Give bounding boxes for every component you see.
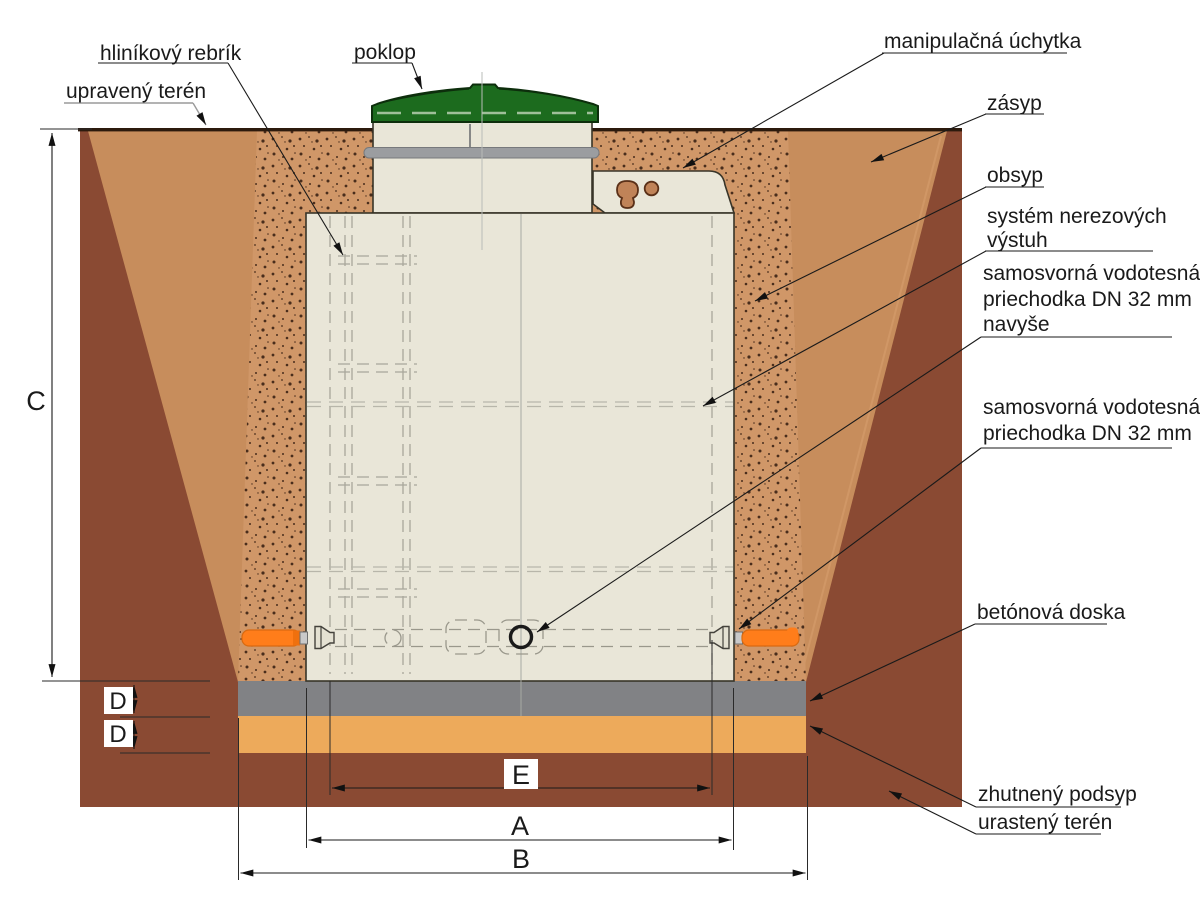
label-priechodka-2: priechodka DN 32 mm (983, 422, 1192, 445)
label-obsyp: obsyp (987, 164, 1043, 187)
handle-cutout-circle (645, 182, 659, 196)
label-priechodka-navyse-2: priechodka DN 32 mm (983, 288, 1192, 311)
label-betonova-doska: betónová doska (977, 601, 1126, 624)
right-pipe-bump (787, 628, 798, 637)
dim-label-D2: D (109, 721, 126, 748)
dimension-A: A (309, 811, 732, 841)
compacted-bedding-sand (238, 716, 806, 753)
left-wall-connector (300, 632, 308, 644)
concrete-slab (238, 681, 806, 716)
dimension-C: C (26, 133, 52, 677)
label-hlinikovy-rebrik: hliníkový rebrík (100, 42, 242, 65)
diagram-canvas: C D D E A B (0, 0, 1200, 899)
label-manipulacna-uchytka: manipulačná úchytka (884, 30, 1082, 53)
tank-shoulder-plate (593, 171, 734, 213)
label-poklop: poklop (354, 41, 416, 64)
right-wall-connector (735, 632, 743, 644)
dim-label-D1: D (109, 688, 126, 715)
tank-body (306, 213, 734, 681)
dimension-D2: D (104, 720, 134, 749)
label-system-nerez-1: systém nerezových (987, 205, 1167, 228)
installation-diagram: C D D E A B (0, 0, 1200, 899)
left-pipe-assembly (242, 627, 334, 649)
dim-label-A: A (511, 811, 529, 841)
label-system-nerez-2: výstuh (987, 229, 1048, 252)
left-orange-pipe (242, 630, 300, 646)
label-priechodka-navyse-1: samosvorná vodotesná (983, 262, 1200, 285)
label-upraveny-teren: upravený terén (66, 80, 206, 103)
label-priechodka-navyse-3: navyše (983, 313, 1050, 336)
dimension-D1: D (104, 685, 134, 715)
label-zhutneny-podsyp: zhutnený podsyp (978, 783, 1137, 806)
dim-label-E: E (512, 760, 530, 790)
left-pipe-cap (293, 631, 300, 646)
right-pipe-assembly (710, 627, 799, 649)
dim-label-C: C (26, 386, 46, 416)
dim-label-B: B (512, 844, 530, 874)
dimension-B: B (241, 844, 806, 874)
label-zasyp: zásyp (987, 92, 1042, 115)
label-priechodka-1: samosvorná vodotesná (983, 396, 1200, 419)
label-urasteny-teren: urastený terén (978, 811, 1112, 834)
lid-poklop (372, 85, 598, 123)
